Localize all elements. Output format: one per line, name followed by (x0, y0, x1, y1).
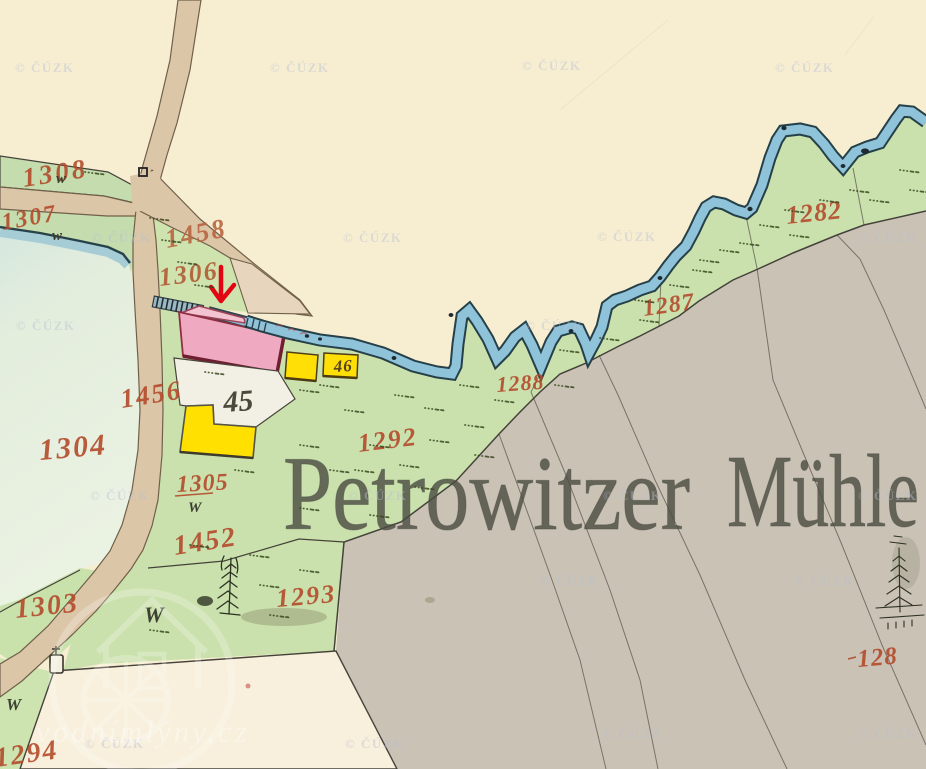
svg-text:1293: 1293 (275, 579, 337, 613)
svg-text:1282: 1282 (785, 195, 844, 230)
svg-text:46: 46 (332, 356, 353, 376)
svg-text:© ČÚZK: © ČÚZK (92, 230, 152, 245)
svg-text:W: W (188, 500, 203, 516)
svg-text:© ČÚZK: © ČÚZK (775, 60, 835, 75)
svg-text:© ČÚZK: © ČÚZK (858, 230, 918, 245)
svg-text:w: w (52, 228, 63, 244)
svg-text:© ČÚZK: © ČÚZK (597, 229, 657, 244)
svg-text:© ČÚZK: © ČÚZK (603, 726, 663, 741)
svg-text:45: 45 (221, 384, 254, 419)
svg-text:© ČÚZK: © ČÚZK (858, 488, 918, 503)
svg-text:© ČÚZK: © ČÚZK (270, 60, 330, 75)
svg-text:1288: 1288 (496, 369, 546, 397)
svg-text:© ČÚZK: © ČÚZK (16, 318, 76, 333)
svg-text:© ČÚZK: © ČÚZK (343, 230, 403, 245)
svg-text:© ČÚZK: © ČÚZK (348, 488, 408, 503)
svg-text:1304: 1304 (38, 428, 109, 467)
svg-text:© ČÚZK: © ČÚZK (858, 726, 918, 741)
svg-text:w: w (56, 171, 67, 187)
svg-text:© ČÚZK: © ČÚZK (522, 58, 582, 73)
svg-text:© ČÚZK: © ČÚZK (525, 318, 585, 333)
svg-text:© ČÚZK: © ČÚZK (795, 573, 855, 588)
svg-text:© ČÚZK: © ČÚZK (345, 736, 405, 751)
svg-text:vodnímlýny.cz: vodnímlýny.cz (36, 714, 250, 749)
svg-text:© ČÚZK: © ČÚZK (15, 60, 75, 75)
svg-text:© ČÚZK: © ČÚZK (540, 573, 600, 588)
svg-text:128: 128 (856, 643, 899, 673)
svg-text:© ČÚZK: © ČÚZK (90, 488, 150, 503)
svg-text:W: W (6, 695, 23, 714)
svg-text:© ČÚZK: © ČÚZK (603, 488, 663, 503)
